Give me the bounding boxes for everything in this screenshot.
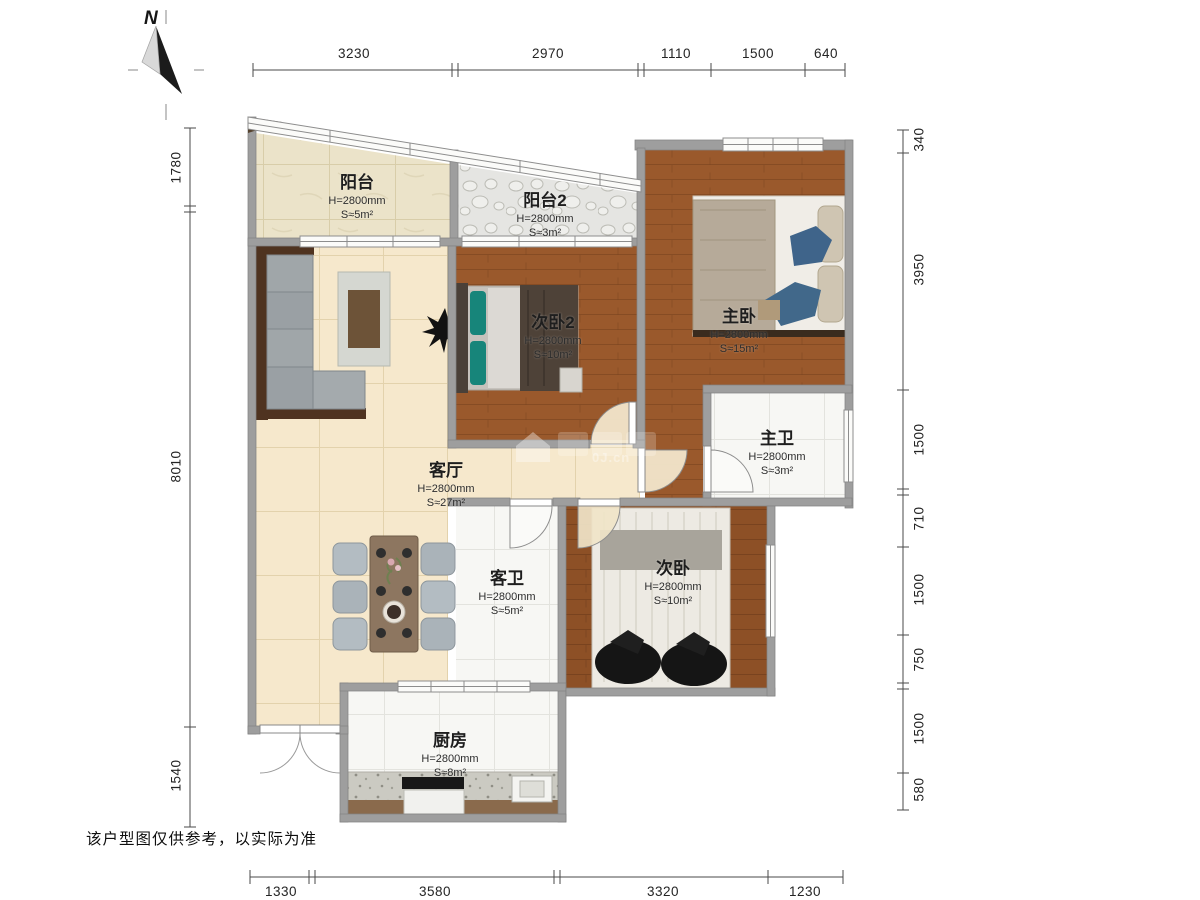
dim-right-1: 340 <box>912 108 927 172</box>
dim-top-3: 1110 <box>644 46 708 61</box>
dim-top-1: 3230 <box>322 46 386 61</box>
dining-set <box>333 536 455 652</box>
entry-double-door <box>260 725 340 773</box>
floor-plan-page: N 阳台 H=2800mm S≈5m² 阳台2 H=2800mm S≈3m² 主… <box>0 0 1200 900</box>
dim-top-4: 1500 <box>726 46 790 61</box>
dim-right-7: 1500 <box>912 697 927 761</box>
master-bed <box>693 196 845 337</box>
dim-top-2: 2970 <box>516 46 580 61</box>
dim-right-6: 750 <box>912 628 927 692</box>
dim-right-8: 580 <box>912 758 927 822</box>
compass: N <box>126 10 210 122</box>
north-label: N <box>144 8 158 30</box>
dim-left-1: 1780 <box>169 136 184 200</box>
dim-right-5: 1500 <box>912 558 927 622</box>
disclaimer-text: 该户型图仅供参考，以实际为准 <box>86 827 317 849</box>
dim-left-2: 8010 <box>169 435 184 499</box>
dim-top-5: 640 <box>794 46 858 61</box>
bedroom-bed <box>592 508 730 688</box>
dim-right-3: 1500 <box>912 408 927 472</box>
dim-bottom-3: 3320 <box>631 884 695 899</box>
kitchen-counter <box>348 772 558 814</box>
dim-bottom-4: 1230 <box>773 884 837 899</box>
bedroom2-bed <box>455 283 582 393</box>
compass-needle <box>126 10 210 122</box>
dim-left-3: 1540 <box>169 744 184 808</box>
dim-right-4: 710 <box>912 487 927 551</box>
dim-bottom-1: 1330 <box>249 884 313 899</box>
coffee-table <box>338 272 390 366</box>
dim-bottom-2: 3580 <box>403 884 467 899</box>
dim-right-2: 3950 <box>912 238 927 302</box>
